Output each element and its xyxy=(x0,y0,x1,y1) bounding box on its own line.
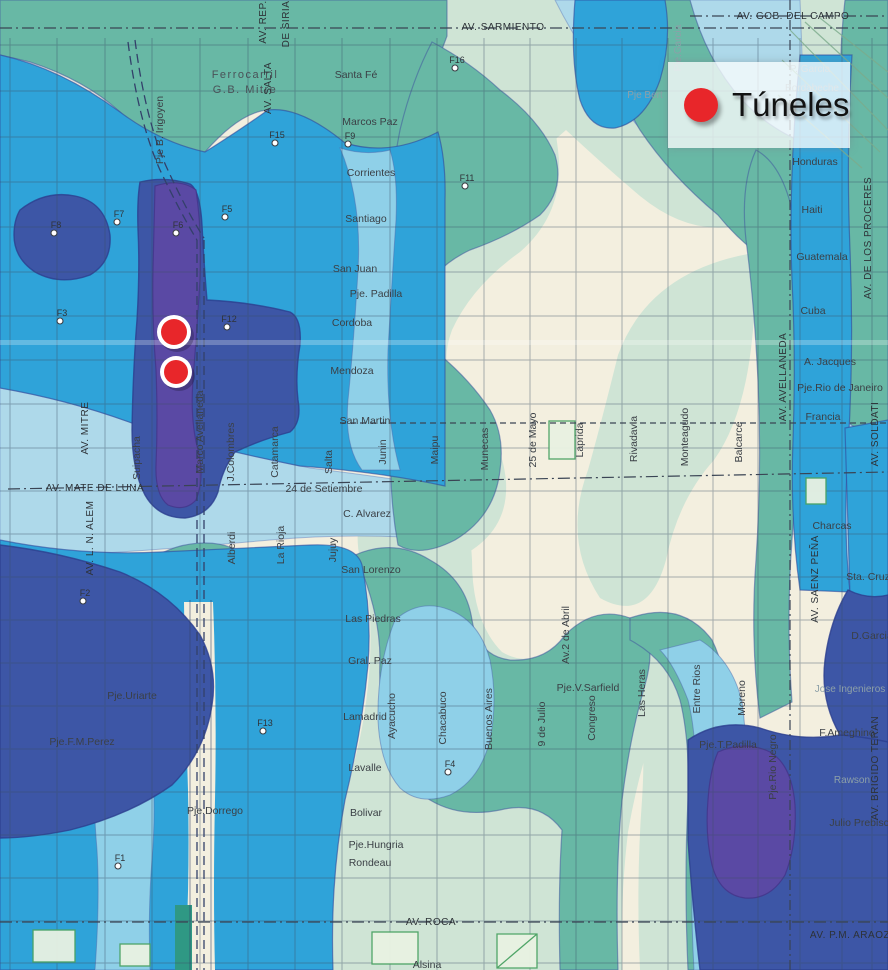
survey-point-f3 xyxy=(57,318,63,324)
survey-point-label-f2: F2 xyxy=(80,588,91,598)
label-av-rep: AV. REP. xyxy=(258,0,269,43)
label-gral-paz: Gral. Paz xyxy=(348,655,392,667)
label-corrientes: Corrientes xyxy=(347,167,395,179)
label-buenos-aires: Buenos Aires xyxy=(483,688,495,750)
label-alsina: Alsina xyxy=(413,959,442,970)
label-av-roca: AV. ROCA xyxy=(406,917,456,928)
label-av-avellaneda: AV. AVELLANEDA xyxy=(778,333,789,422)
survey-point-label-f11: F11 xyxy=(460,173,475,183)
label-av-salta: AV. SALTA xyxy=(263,62,274,114)
tunnel-marker-1-icon xyxy=(161,319,187,345)
label-la-rioja: La Rioja xyxy=(275,526,287,565)
label-moreno: Moreno xyxy=(736,680,748,716)
survey-point-f6 xyxy=(173,230,179,236)
label-charcas: Charcas xyxy=(812,520,851,532)
label-catamarca: Catamarca xyxy=(269,426,281,478)
label-pje-rio-negro: Pje.Rio Negro xyxy=(767,734,779,800)
label-9-de-julio: 9 de Julio xyxy=(536,701,548,746)
label-pje-padilla: Pje. Padilla xyxy=(350,288,403,300)
label-av-mitre: AV. MITRE xyxy=(80,402,91,455)
survey-point-label-f16: F16 xyxy=(449,55,465,65)
map-stage: AV. SARMIENTOAV. GOB. DEL CAMPOFerrocarr… xyxy=(0,0,888,970)
label-maipu: Maipu xyxy=(429,436,441,465)
label-munecas: Munecas xyxy=(479,428,491,471)
label-25-de-mayo: 25 de Mayo xyxy=(527,412,539,467)
label-av-gob-del-campo: AV. GOB. DEL CAMPO xyxy=(737,11,850,22)
label-san-lorenzo: San Lorenzo xyxy=(341,564,401,576)
label-pje-rio-de-janeiro: Pje.Rio de Janeiro xyxy=(797,382,883,394)
label-lamadrid: Lamadrid xyxy=(343,711,387,723)
label-d-garcia: D.Garcia xyxy=(851,630,888,642)
label-av-mate-de-luna: AV. MATE DE LUNA xyxy=(46,483,144,494)
label-balcarce: Balcarce xyxy=(733,421,745,462)
label-cordoba: Cordoba xyxy=(332,317,372,329)
label-av-sarmiento: AV. SARMIENTO xyxy=(461,22,544,33)
label-congreso: Congreso xyxy=(586,695,598,741)
zone-deep-teal-strip xyxy=(175,905,192,970)
label-ayacucho: Ayacucho xyxy=(386,693,398,739)
survey-point-f16 xyxy=(452,65,458,71)
survey-point-f1 xyxy=(115,863,121,869)
label-chacabuco: Chacabuco xyxy=(437,691,449,744)
label-entre-rios: Entre Rios xyxy=(691,664,703,713)
label-24-de-setiembre: 24 de Setiembre xyxy=(285,483,362,495)
label-cuba: Cuba xyxy=(800,305,825,317)
label-laprida: Laprida xyxy=(574,422,586,457)
label-bolivar: Bolivar xyxy=(350,807,383,819)
label-a-jacques: A. Jacques xyxy=(804,356,856,368)
survey-point-f13 xyxy=(260,728,266,734)
survey-point-label-f4: F4 xyxy=(445,759,456,769)
label-rondeau: Rondeau xyxy=(349,857,392,869)
survey-point-f7 xyxy=(114,219,120,225)
survey-point-f2 xyxy=(80,598,86,604)
label-pje-uriarte: Pje.Uriarte xyxy=(107,690,157,702)
survey-point-label-f6: F6 xyxy=(173,220,184,230)
survey-point-label-f1: F1 xyxy=(115,853,126,863)
label-san-juan: San Juan xyxy=(333,263,378,275)
label-pje-bert: Pje Bert xyxy=(627,90,663,101)
label-f-ameghino: F.Ameghino xyxy=(819,727,875,739)
survey-point-f9 xyxy=(345,141,351,147)
label-guatemala: Guatemala xyxy=(796,251,848,263)
label-jose-ingenieros: Jose Ingenieros xyxy=(815,684,886,695)
label-las-heras: Las Heras xyxy=(636,669,648,717)
label-las-piedras: Las Piedras xyxy=(345,613,400,625)
label-santiago: Santiago xyxy=(345,213,387,225)
survey-point-label-f7: F7 xyxy=(114,209,125,219)
survey-point-label-f9: F9 xyxy=(345,131,356,141)
survey-point-f4 xyxy=(445,769,451,775)
label-j-colombres: J.Colombres xyxy=(225,423,237,482)
label-av-l-n-alem: AV. L. N. ALEM xyxy=(85,501,96,576)
survey-point-label-f13: F13 xyxy=(257,718,273,728)
label-lavalle: Lavalle xyxy=(348,762,381,774)
label-av-de-los-proceres: AV. DE LOS PROCERES xyxy=(863,177,874,299)
label-rivadavia: Rivadavia xyxy=(628,416,640,462)
label-av-pm-araoz: AV. P.M. ARAOZ xyxy=(810,930,888,941)
survey-point-label-f8: F8 xyxy=(51,220,62,230)
legend-title: Túneles xyxy=(732,86,849,124)
label-pje-hungria: Pje.Hungria xyxy=(349,839,404,851)
label-pje-t-padilla: Pje.T.Padilla xyxy=(699,739,757,751)
label-pje-dorrego: Pje.Dorrego xyxy=(187,805,243,817)
label-av-soldati: AV. SOLDATI xyxy=(870,402,881,467)
legend-box: Túneles xyxy=(668,62,850,148)
tunnel-marker-2-icon xyxy=(164,360,188,384)
label-monteagudo: Monteagudo xyxy=(679,408,691,467)
label-av-2-de-abril: Av.2 de Abril xyxy=(560,606,572,664)
label-san-martin: San Martin xyxy=(340,415,391,427)
label-alberdi: Alberdi xyxy=(226,532,238,565)
label-rawson: Rawson xyxy=(834,775,870,786)
tunnel-legend-marker-icon xyxy=(684,88,718,122)
label-pje-b-irigoyen: Pje B. Irigoyen xyxy=(154,96,166,164)
label-sta-cruz: Sta. Cruz xyxy=(846,571,888,583)
label-av-brigido-teran: AV. BRIGIDO TERAN xyxy=(870,716,881,820)
label-santa-fe: Santa Fé xyxy=(335,69,378,81)
label-jujuy: Jujuy xyxy=(327,537,339,562)
label-honduras: Honduras xyxy=(792,156,838,168)
label-haiti: Haiti xyxy=(801,204,822,216)
label-de-siria: DE SIRIA xyxy=(281,1,292,48)
label-marcos-paz: Marcos Paz xyxy=(342,116,397,128)
survey-point-f12 xyxy=(224,324,230,330)
label-francia: Francia xyxy=(805,411,840,423)
survey-point-label-f15: F15 xyxy=(269,130,285,140)
label-mendoza: Mendoza xyxy=(330,365,373,377)
label-suipacha: Suipacha xyxy=(131,436,143,480)
label-pje-v-sarfield: Pje.V.Sarfield xyxy=(557,682,620,694)
label-salta: Salta xyxy=(323,450,335,474)
survey-point-f8 xyxy=(51,230,57,236)
survey-point-f11 xyxy=(462,183,468,189)
survey-point-label-f3: F3 xyxy=(57,308,68,318)
survey-point-f15 xyxy=(272,140,278,146)
label-av-saenz-pena: AV. SAENZ PEÑA xyxy=(808,535,821,623)
survey-point-f5 xyxy=(222,214,228,220)
survey-point-label-f12: F12 xyxy=(221,314,237,324)
label-c-alvarez: C. Alvarez xyxy=(343,508,391,520)
label-junin: Junin xyxy=(377,439,389,464)
scan-fold-line xyxy=(0,340,888,345)
label-marco-avellaneda: Marco Avellaneda xyxy=(194,390,206,473)
survey-point-label-f5: F5 xyxy=(222,204,233,214)
label-pje-fm-perez: Pje.F.M.Perez xyxy=(49,736,114,748)
